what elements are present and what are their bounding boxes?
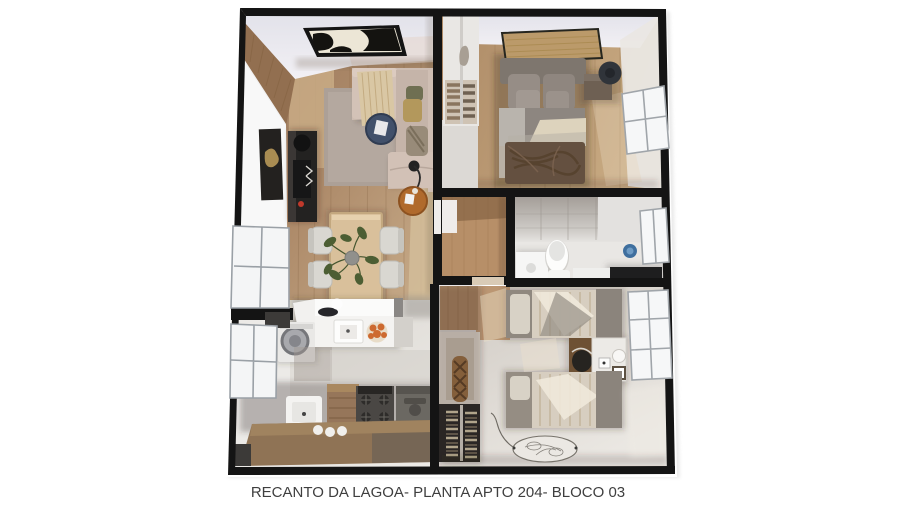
svg-text:RECANTO DA LAGOA- PLANTA APTO: RECANTO DA LAGOA- PLANTA APTO 204- BLOCO… xyxy=(251,484,625,501)
